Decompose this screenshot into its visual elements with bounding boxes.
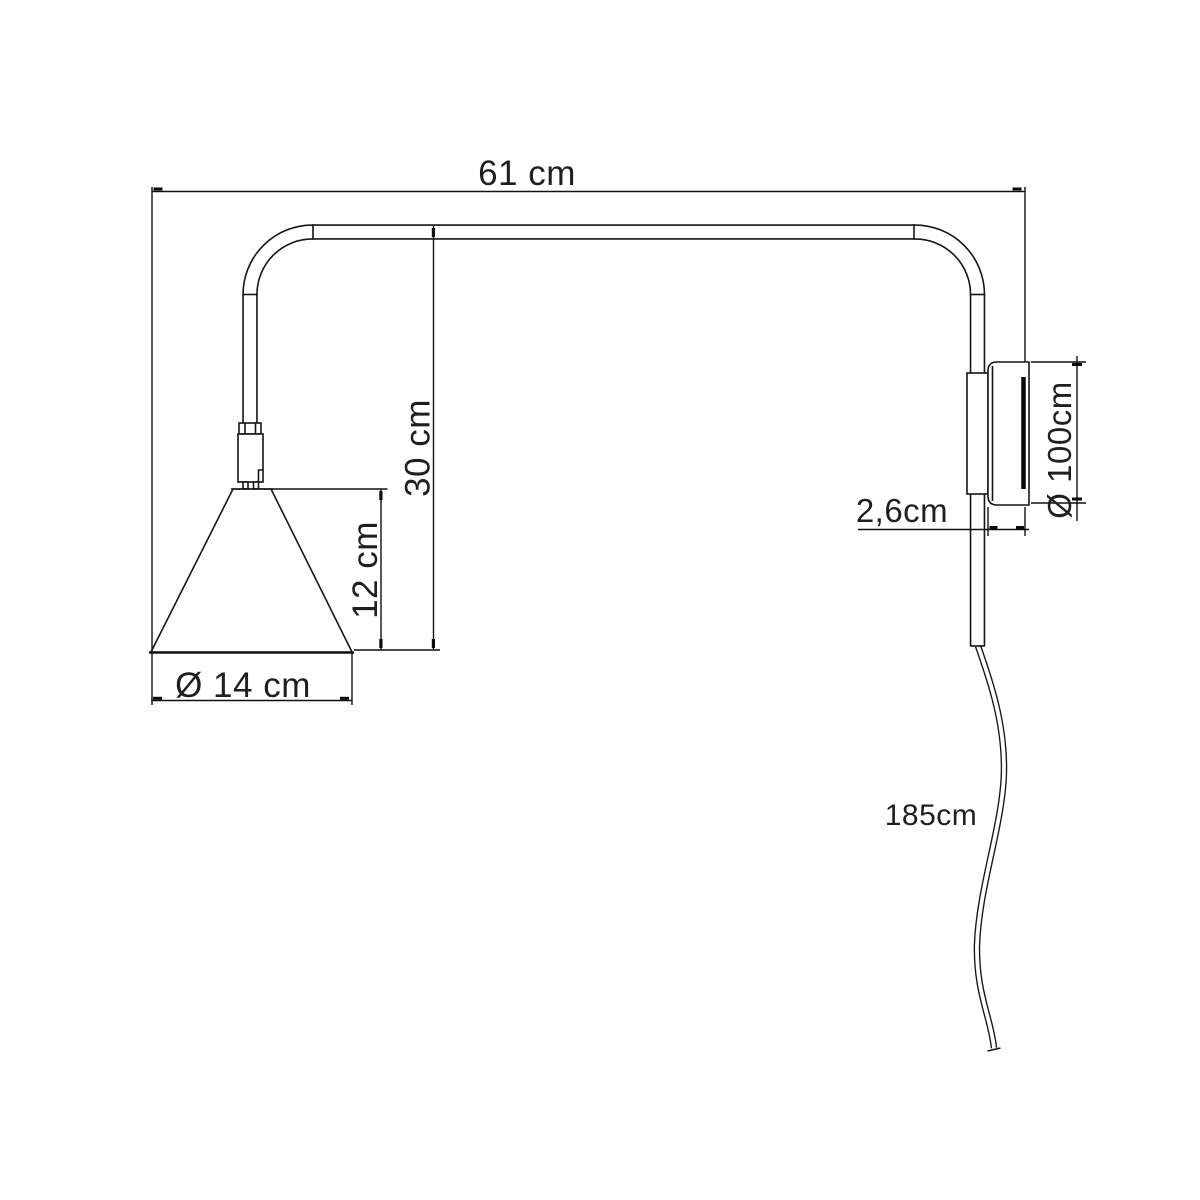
dimension-arm-drop: 30 cm xyxy=(399,226,438,650)
dim-label-arm-drop: 30 cm xyxy=(399,399,438,497)
dim-label-cable-length: 185cm xyxy=(885,799,978,832)
power-cable xyxy=(977,646,1004,1051)
dim-label-shade-height: 12 cm xyxy=(346,521,385,619)
cable-end-cap xyxy=(988,1048,1001,1051)
wall-bracket xyxy=(967,373,988,494)
wall-plate xyxy=(988,362,1029,505)
dimension-shade-diameter: Ø 14 cm xyxy=(151,653,352,705)
socket-leg-left xyxy=(243,482,248,489)
dim-label-wall-plate-diameter: Ø 100cm xyxy=(1041,381,1078,518)
lamp-socket xyxy=(238,423,263,489)
shade-cone xyxy=(151,489,352,652)
socket-leg-right xyxy=(254,482,259,489)
drawing-canvas: 61 cm 30 cm 12 cm Ø 14 cm xyxy=(0,0,1200,1200)
lamp-shade xyxy=(149,489,354,653)
wall-lamp-dimension-drawing: 61 cm 30 cm 12 cm Ø 14 cm xyxy=(0,0,1200,1200)
dim-label-shade-diameter: Ø 14 cm xyxy=(175,666,311,705)
dimension-wall-plate-diameter: Ø 100cm xyxy=(1031,356,1086,521)
dim-label-arm-width: 61 cm xyxy=(478,154,576,193)
dim-label-wall-plate-depth: 2,6cm xyxy=(856,492,948,529)
socket-nut xyxy=(239,423,261,434)
